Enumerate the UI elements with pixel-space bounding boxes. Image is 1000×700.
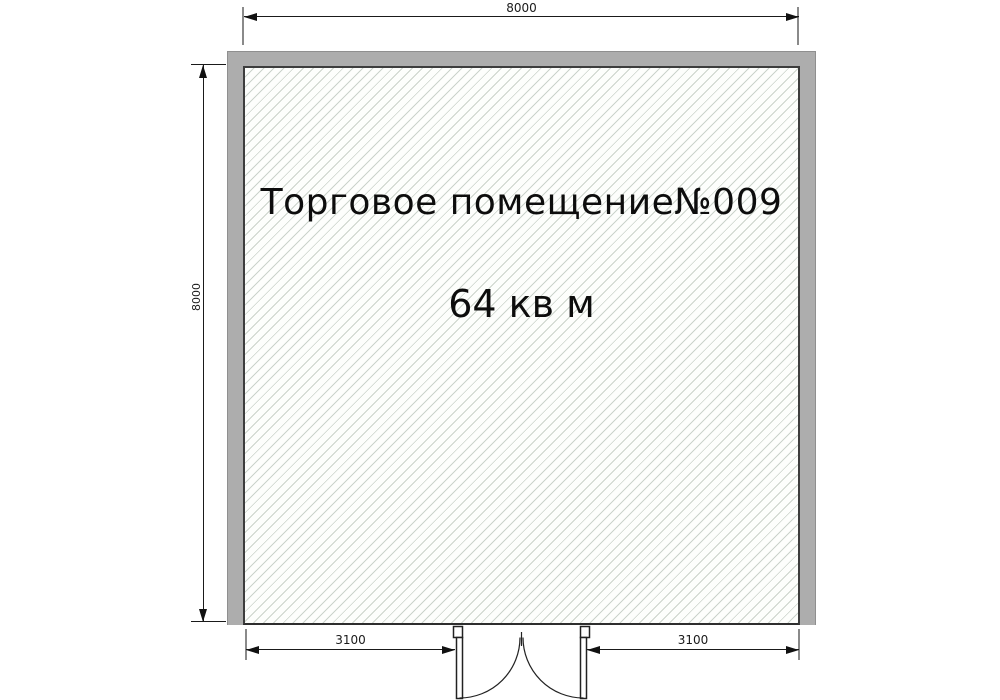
bottom-right-dim-line [587, 649, 799, 650]
left-dim-line [203, 65, 204, 622]
room-interior-hatch [243, 66, 800, 625]
door-swing-arc-right [523, 638, 584, 699]
room-name-label: Торговое помещение№009 [243, 182, 800, 223]
door-swing-arc-left [460, 638, 521, 699]
door-leaf-right [581, 638, 587, 699]
bottom-right-dim-arrow-left [587, 646, 600, 654]
bottom-right-dim-label: 3100 [587, 633, 799, 647]
left-dim-arrow-down [199, 609, 207, 622]
bottom-left-dim-label: 3100 [246, 633, 455, 647]
top-dim-label: 8000 [244, 1, 799, 15]
left-dim-tick-top [191, 64, 226, 65]
room-area-label: 64 кв м [243, 282, 800, 326]
left-dim-label: 8000 [190, 272, 204, 322]
door-leaf-left [457, 638, 463, 699]
left-dim-tick-bottom [191, 621, 226, 622]
bottom-left-dim-line [246, 649, 455, 650]
bottom-left-dim-arrow-right [442, 646, 455, 654]
floor-plan-canvas: 8000 8000 Торговое помещение№009 64 кв м… [0, 0, 1000, 700]
bottom-left-dim-arrow-left [246, 646, 259, 654]
left-dim-arrow-up [199, 65, 207, 78]
top-dim-line [244, 16, 799, 17]
bottom-right-dim-arrow-right [786, 646, 799, 654]
